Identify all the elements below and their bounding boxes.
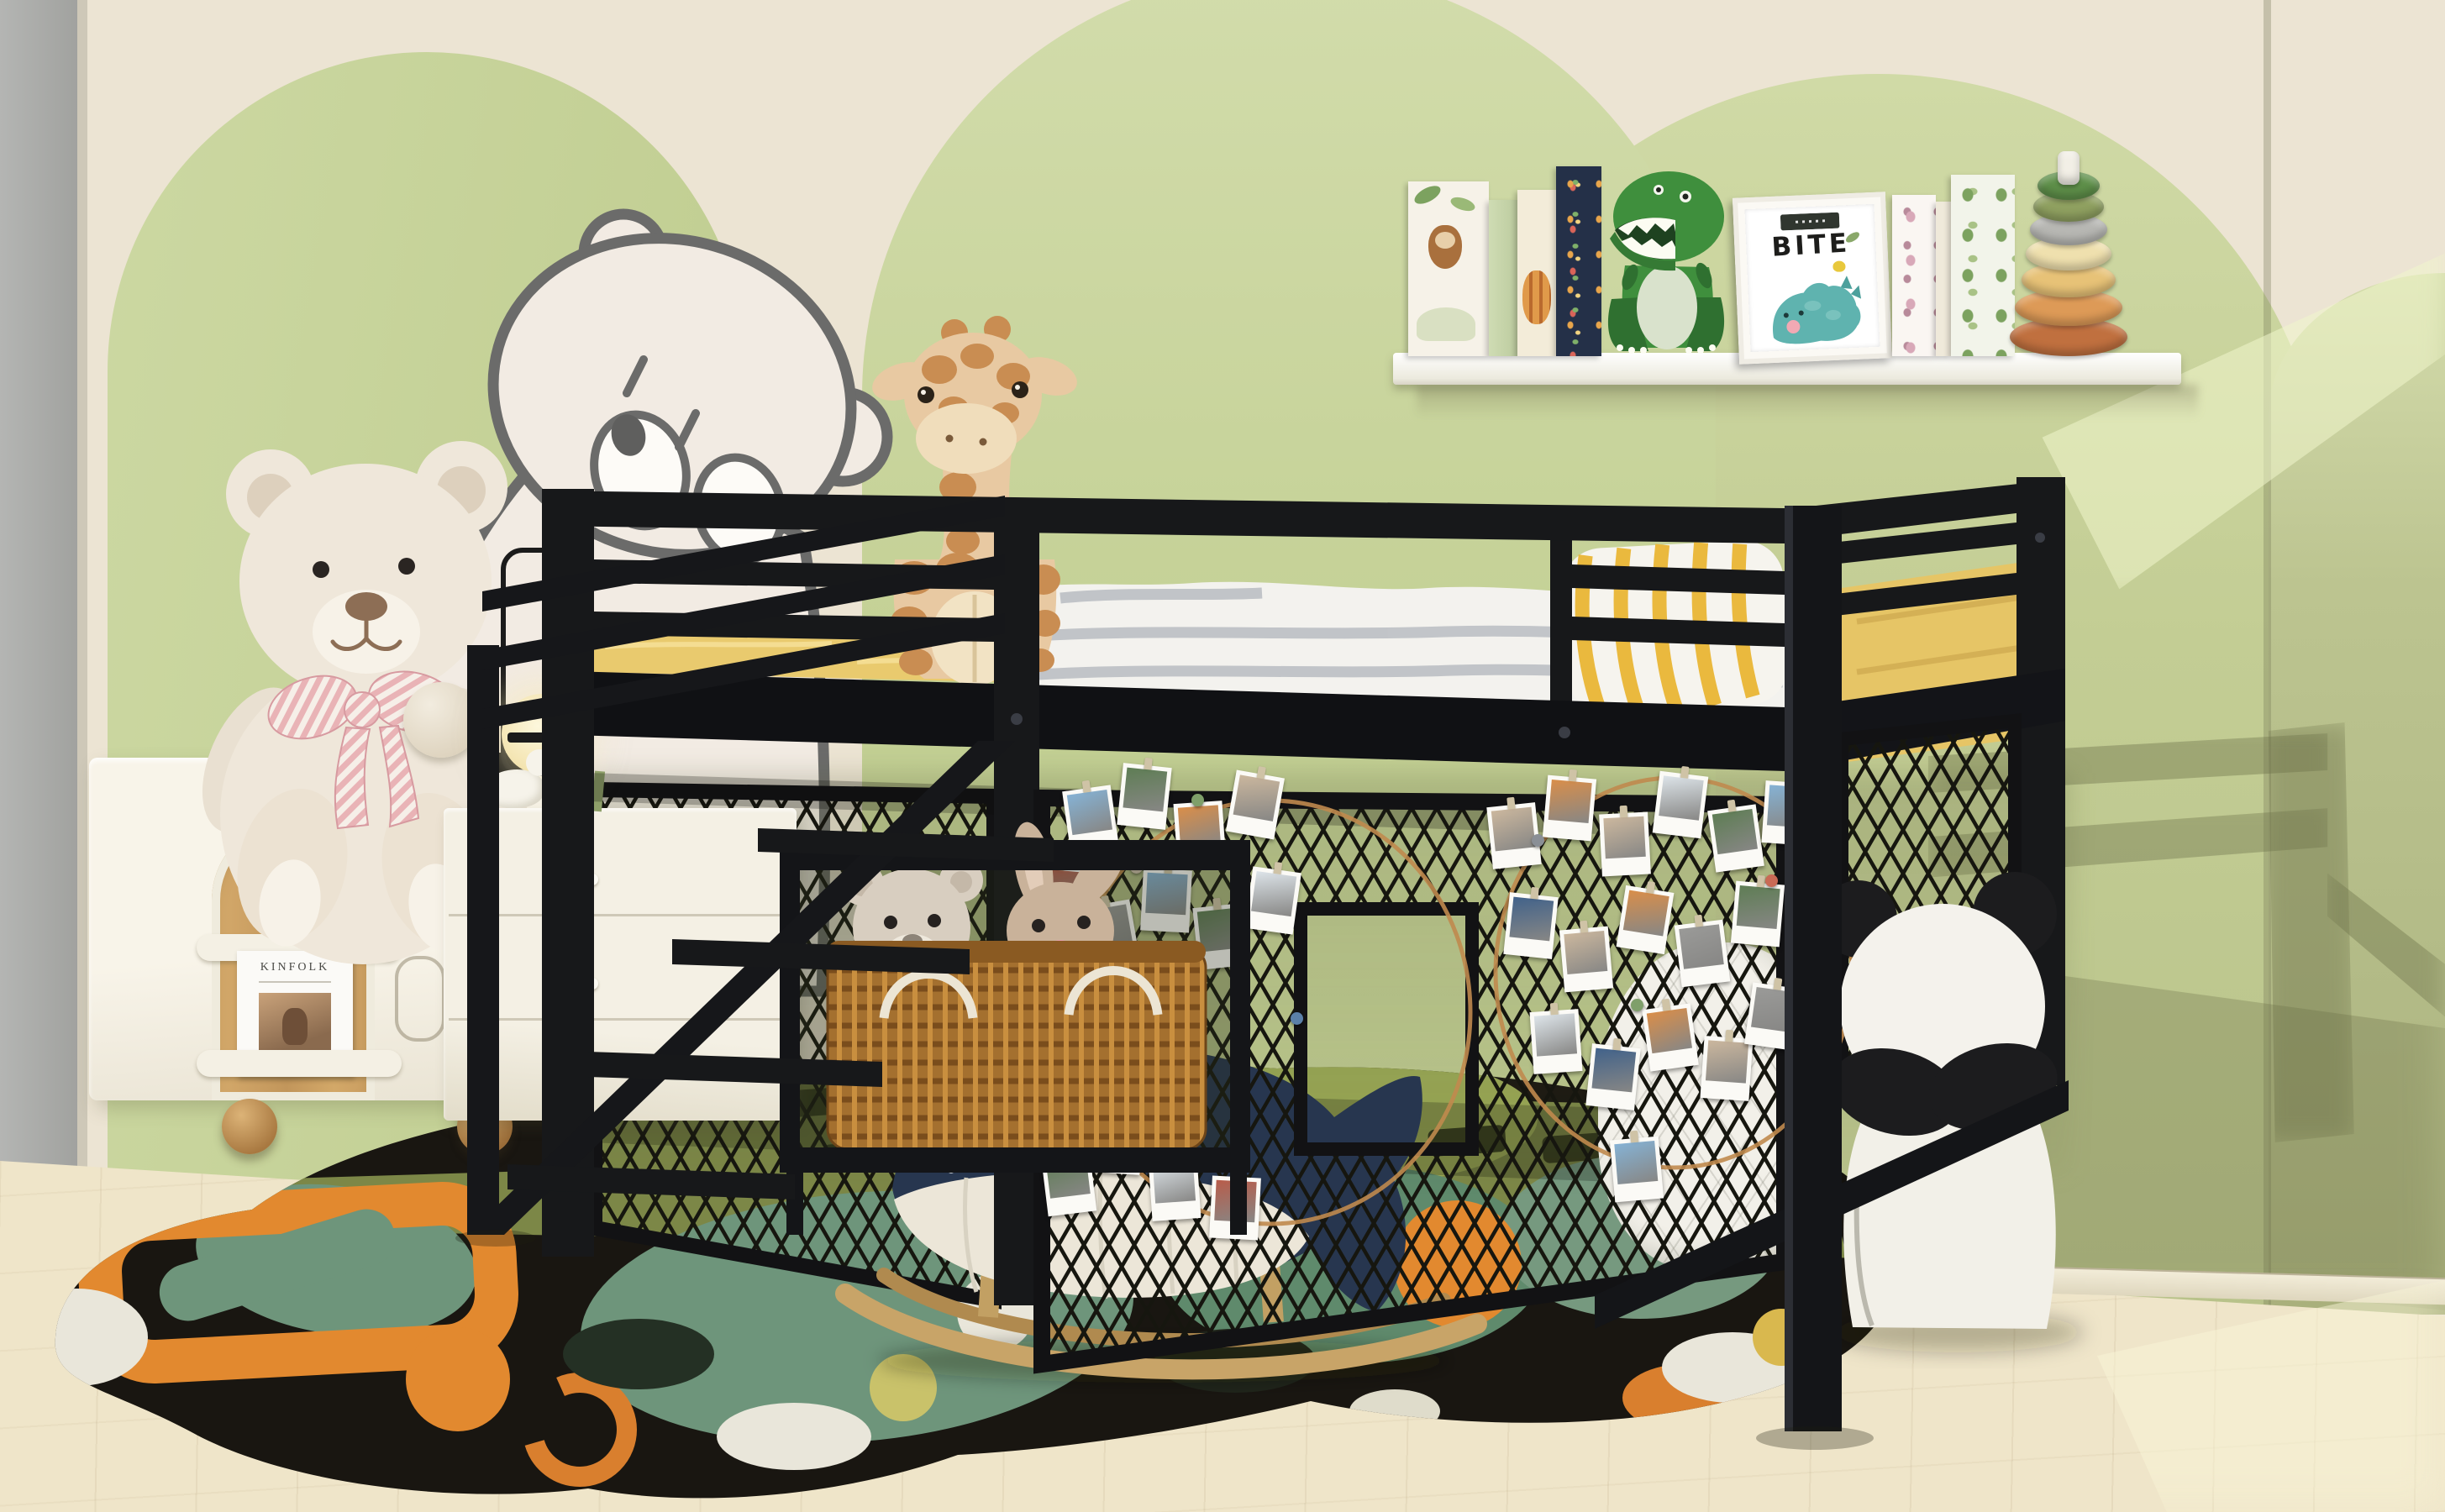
staircase xyxy=(0,0,2445,1512)
stair-railing xyxy=(482,496,1005,729)
room-photo: BITE xyxy=(0,0,2445,1512)
wicker-basket xyxy=(828,941,1206,1149)
